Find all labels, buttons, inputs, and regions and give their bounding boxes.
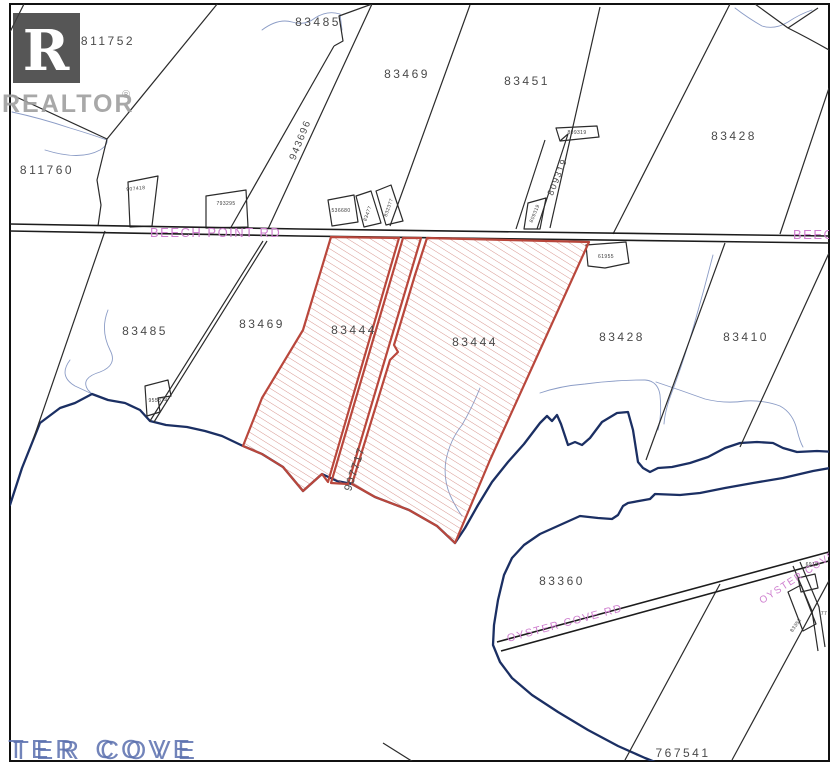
- cove-label: TER COVE: [13, 735, 202, 765]
- parcel-map: BEECH POINT RD BEECH POINT RD OYSTER COV…: [0, 0, 836, 768]
- stream-line: [664, 255, 713, 424]
- parcel-label-83469-top: 83469: [384, 67, 430, 81]
- parcel-boundary-line: [390, 5, 470, 226]
- coastline-south-shore: [493, 467, 836, 762]
- parcel-label-907418: 907418: [126, 185, 146, 193]
- parcel-boundary-line: [107, 3, 218, 139]
- highlighted-parcel-83444-right: [352, 238, 589, 543]
- parcel-boundary-line: [780, 88, 829, 234]
- parcel-boundary-line: [33, 231, 105, 440]
- parcel-label-61955: 61955: [598, 254, 614, 260]
- stream-line: [86, 310, 113, 394]
- parcel-label-6918: 6918: [806, 562, 819, 568]
- realtor-logo: R REALTOR ®: [2, 13, 135, 118]
- parcel-label-811760: 811760: [20, 163, 74, 177]
- parcel-label-955874: 955874: [148, 398, 167, 404]
- realtor-logo-letter: R: [23, 18, 70, 84]
- parcel-label-83485-top: 83485: [295, 15, 341, 29]
- parcel-label-767541: 767541: [655, 746, 710, 760]
- road-edge: [501, 559, 836, 651]
- parcel-label-77: 77: [821, 611, 827, 617]
- parcel-boundary-line: [732, 577, 831, 760]
- parcel-boundary-line: [128, 176, 158, 227]
- road-label-oyster-cove: OYSTER COVE RD: [506, 602, 624, 644]
- parcel-label-943696: 943696: [288, 118, 314, 161]
- parcel-label-809319-small-top: 809319: [567, 130, 586, 136]
- parcel-label-536680: 536680: [331, 208, 350, 214]
- parcel-boundary-line: [550, 7, 600, 228]
- parcel-boundary-line: [625, 584, 720, 760]
- road-edge: [10, 224, 829, 236]
- highlight-parcels: [243, 237, 589, 543]
- stream-line: [45, 140, 107, 156]
- parcel-label-83451: 83451: [504, 74, 550, 88]
- parcel-boundary-line: [613, 4, 730, 234]
- stream-line: [656, 382, 803, 447]
- parcel-boundary-line: [97, 139, 107, 226]
- parcel-boundary-line: [230, 46, 334, 229]
- parcel-label-832377: 832377: [383, 198, 395, 218]
- road-label-oyster-cove-fragment: OYSTER COVE RD: [758, 537, 836, 606]
- parcel-label-83469-mid: 83469: [239, 317, 285, 331]
- parcel-label-809319-strip: 809319: [545, 157, 569, 197]
- realtor-wordmark: REALTOR: [2, 90, 135, 118]
- parcel-label-83444-right: 83444: [452, 335, 498, 349]
- parcel-boundary-line: [646, 243, 725, 460]
- parcel-label-83485-mid: 83485: [122, 324, 168, 338]
- road-label-beech-point: BEECH POINT RD: [150, 225, 281, 240]
- parcel-label-83444-left: 83444: [331, 323, 377, 337]
- parcel-label-793295: 793295: [216, 201, 235, 207]
- parcel-label-811752: 811752: [81, 34, 135, 48]
- parcel-label-83428-top: 83428: [711, 129, 757, 143]
- parcel-label-83477: 83477: [363, 205, 374, 222]
- registered-mark-icon: ®: [122, 89, 130, 101]
- water-label-group: TER COVE TER COVE: [8, 734, 202, 765]
- parcel-label-83360: 83360: [539, 574, 585, 588]
- road-oyster-cove: [497, 550, 836, 651]
- parcel-label-83428-mid: 83428: [599, 330, 645, 344]
- parcel-label-83410: 83410: [723, 330, 769, 344]
- parcel-boundary-line: [740, 253, 829, 447]
- stream-line: [65, 360, 92, 394]
